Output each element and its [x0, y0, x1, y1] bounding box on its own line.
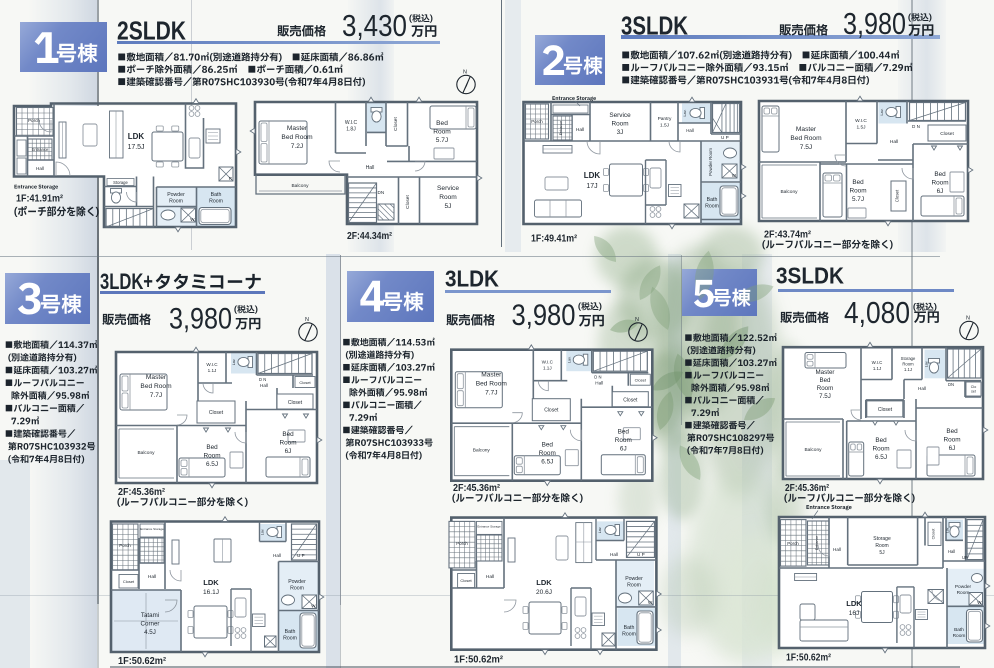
svg-text:1F:50.62m²: 1F:50.62m² [118, 655, 166, 667]
svg-text:Hall: Hall [610, 552, 618, 557]
svg-text:1F:50.62m²: 1F:50.62m² [454, 654, 503, 666]
svg-text:Room: Room [627, 582, 641, 588]
svg-text:2F:43.74m²: 2F:43.74m² [764, 229, 811, 241]
svg-text:Closet: Closet [635, 378, 647, 383]
svg-text:U P: U P [721, 135, 729, 140]
svg-text:Porch: Porch [119, 543, 131, 548]
svg-text:Balcony: Balcony [473, 448, 491, 454]
svg-text:Porch: Porch [456, 541, 468, 546]
svg-text:Room: Room [705, 203, 719, 209]
svg-text:6J: 6J [937, 188, 944, 195]
svg-text:Room: Room [622, 631, 636, 637]
svg-text:Service: Service [609, 112, 631, 119]
svg-text:W: W [648, 600, 653, 605]
svg-text:Room: Room [615, 437, 632, 444]
svg-text:3J: 3J [617, 129, 624, 136]
svg-text:Closet: Closet [895, 189, 900, 202]
svg-text:Room: Room [433, 129, 451, 136]
svg-text:1.5J: 1.5J [856, 125, 866, 131]
svg-text:Porch: Porch [28, 118, 40, 123]
svg-text:LDK: LDK [584, 171, 601, 180]
svg-text:W.I.C: W.I.C [855, 118, 867, 124]
svg-text:1.5J: 1.5J [660, 123, 670, 129]
svg-text:6.5J: 6.5J [206, 461, 218, 468]
svg-text:Powder Room: Powder Room [708, 148, 713, 176]
svg-text:3SLDK: 3SLDK [621, 11, 688, 41]
svg-text:N: N [463, 69, 467, 75]
svg-text:Clo: Clo [971, 385, 976, 389]
svg-text:5.7J: 5.7J [852, 196, 864, 203]
svg-text:Hall: Hall [36, 166, 44, 171]
svg-text:Lav.: Lav. [683, 110, 687, 117]
svg-text:Porch: Porch [787, 541, 799, 546]
svg-text:Room: Room [539, 450, 556, 457]
svg-text:Closet: Closet [940, 131, 954, 137]
svg-text:1.1J: 1.1J [904, 367, 912, 372]
svg-text:LDK: LDK [536, 578, 552, 587]
svg-text:Hall: Hall [576, 127, 584, 133]
svg-text:Lav.: Lav. [598, 527, 602, 534]
svg-text:1.1J: 1.1J [873, 366, 881, 371]
svg-text:D N: D N [594, 375, 601, 380]
svg-text:1.1J: 1.1J [208, 368, 217, 373]
svg-text:U P: U P [297, 553, 305, 558]
svg-text:Powder: Powder [288, 579, 306, 585]
svg-text:Closet: Closet [209, 410, 224, 416]
svg-text:16J: 16J [849, 610, 859, 617]
svg-text:Entrance: Entrance [32, 147, 49, 152]
svg-text:W.I.C: W.I.C [542, 360, 554, 365]
svg-text:Bed: Bed [282, 431, 294, 438]
svg-text:Closet: Closet [932, 528, 936, 540]
svg-text:Lav.: Lav. [261, 529, 265, 536]
svg-text:Bath: Bath [954, 627, 964, 633]
svg-text:Lav.: Lav. [880, 109, 884, 116]
svg-text:Master: Master [481, 372, 502, 379]
svg-text:Closet: Closet [393, 117, 399, 131]
svg-text:Bed: Bed [946, 428, 958, 435]
svg-text:set: set [971, 390, 976, 394]
svg-text:Room: Room [203, 453, 220, 460]
svg-text:Bath: Bath [211, 192, 222, 198]
svg-text:4.5J: 4.5J [144, 629, 156, 636]
svg-text:W.I.C: W.I.C [206, 362, 218, 367]
svg-text:N: N [635, 317, 639, 323]
svg-text:2F:45.36m²: 2F:45.36m² [453, 482, 500, 494]
svg-text:3,980: 3,980 [843, 6, 906, 41]
svg-text:DN: DN [378, 190, 385, 195]
svg-text:Bath: Bath [624, 625, 635, 631]
svg-text:Porch: Porch [531, 119, 543, 124]
svg-text:N: N [966, 315, 970, 321]
svg-text:Hall: Hall [595, 381, 603, 386]
svg-text:Hall: Hall [260, 383, 268, 388]
svg-text:2F:45.36m²: 2F:45.36m² [785, 482, 829, 494]
svg-text:6J: 6J [949, 445, 956, 452]
svg-text:Entrance Storage: Entrance Storage [140, 527, 164, 531]
svg-text:Bed Room: Bed Room [790, 135, 822, 142]
svg-text:Corner: Corner [141, 621, 160, 628]
svg-text:7.7J: 7.7J [485, 390, 497, 397]
svg-text:UP: UP [962, 555, 968, 560]
svg-text:LDK: LDK [203, 578, 219, 587]
svg-text:Master: Master [146, 374, 167, 381]
svg-text:Master: Master [816, 369, 835, 376]
svg-text:Master: Master [796, 126, 817, 133]
svg-text:Room: Room [931, 180, 948, 187]
svg-text:Bed: Bed [436, 120, 448, 127]
svg-text:Lav.: Lav. [567, 356, 571, 363]
svg-text:5J: 5J [879, 550, 885, 556]
svg-text:Room: Room [943, 437, 960, 444]
svg-text:U P: U P [637, 552, 645, 557]
svg-text:LDK: LDK [128, 132, 145, 141]
svg-text:Closet: Closet [123, 579, 135, 584]
svg-text:16.1J: 16.1J [203, 589, 219, 596]
svg-text:Bed: Bed [875, 437, 887, 444]
svg-text:3,980: 3,980 [169, 303, 232, 336]
svg-text:Hall: Hall [686, 128, 694, 133]
svg-text:W.I.C: W.I.C [345, 120, 358, 126]
svg-text:Room: Room [817, 385, 834, 392]
svg-text:1.8J: 1.8J [346, 127, 356, 133]
svg-text:6.5J: 6.5J [875, 454, 887, 461]
svg-text:Closet: Closet [544, 408, 559, 414]
svg-text:6J: 6J [620, 446, 627, 453]
svg-text:Room: Room [872, 446, 889, 453]
svg-text:Storage: Storage [113, 180, 128, 185]
svg-text:Bed Room: Bed Room [281, 134, 313, 141]
svg-text:2F:45.36m²: 2F:45.36m² [118, 486, 165, 498]
svg-text:Entrance: Entrance [559, 121, 563, 135]
svg-text:Powder: Powder [167, 192, 185, 198]
svg-text:Bath: Bath [285, 629, 296, 635]
svg-text:Lav.: Lav. [232, 359, 236, 366]
svg-text:Room: Room [957, 590, 970, 596]
svg-text:Bed: Bed [819, 377, 831, 384]
svg-text:Balcony: Balcony [804, 447, 822, 453]
svg-text:Bed Room: Bed Room [476, 381, 508, 388]
svg-text:Tatami: Tatami [141, 612, 159, 619]
svg-text:Balcony: Balcony [137, 450, 155, 456]
svg-text:Room: Room [875, 543, 888, 549]
svg-text:Bed: Bed [618, 429, 630, 436]
svg-text:2F:44.34m²: 2F:44.34m² [347, 230, 392, 242]
svg-text:Powder: Powder [625, 576, 643, 582]
svg-text:2SLDK: 2SLDK [117, 16, 186, 46]
svg-text:Master: Master [287, 125, 308, 132]
svg-text:7.7J: 7.7J [150, 392, 162, 399]
svg-text:Bath: Bath [707, 197, 718, 203]
svg-text:Closet: Closet [299, 380, 311, 385]
svg-text:Room: Room [169, 198, 183, 204]
svg-text:Hall: Hall [148, 574, 156, 580]
svg-text:Closet: Closet [288, 400, 303, 406]
svg-text:DN: DN [948, 382, 954, 387]
svg-text:3,980: 3,980 [512, 299, 576, 332]
svg-text:Room: Room [290, 585, 304, 591]
svg-text:Room: Room [209, 198, 223, 204]
svg-text:1F:50.62m²: 1F:50.62m² [786, 652, 831, 664]
svg-text:Bed Room: Bed Room [140, 383, 172, 390]
svg-text:6.5J: 6.5J [541, 459, 553, 466]
svg-text:Bed: Bed [934, 171, 946, 178]
svg-text:3SLDK: 3SLDK [776, 263, 844, 289]
svg-text:Storage: Storage [901, 356, 916, 361]
svg-text:Hall: Hall [918, 386, 926, 391]
svg-text:17.5J: 17.5J [127, 144, 144, 151]
svg-text:Bed: Bed [206, 444, 218, 451]
svg-text:7.5J: 7.5J [800, 144, 812, 151]
svg-text:Room: Room [279, 440, 296, 447]
svg-text:D N: D N [259, 377, 266, 382]
svg-text:20.6J: 20.6J [536, 589, 552, 596]
svg-text:Powder: Powder [955, 584, 972, 590]
svg-text:1F:41.91m²: 1F:41.91m² [16, 193, 63, 205]
svg-text:Balcony: Balcony [291, 183, 309, 189]
svg-text:5J: 5J [445, 203, 452, 210]
svg-text:3,430: 3,430 [342, 8, 407, 43]
svg-text:N: N [305, 317, 309, 323]
svg-text:7.5J: 7.5J [819, 393, 831, 400]
svg-text:Closet: Closet [405, 195, 411, 209]
svg-text:Storage: Storage [873, 536, 891, 542]
svg-text:3LDK: 3LDK [445, 266, 499, 292]
svg-text:1.1J: 1.1J [543, 366, 552, 371]
svg-text:3LDK+: 3LDK+ [100, 269, 153, 294]
svg-text:Closet: Closet [878, 407, 893, 413]
svg-text:Hall: Hall [273, 553, 281, 558]
svg-text:Balcony: Balcony [780, 189, 798, 195]
svg-text:Room: Room [902, 362, 914, 367]
svg-text:Room: Room [283, 635, 297, 641]
svg-text:Room: Room [611, 121, 628, 128]
svg-text:7.2J: 7.2J [291, 143, 303, 150]
svg-text:Hall: Hall [366, 165, 375, 171]
svg-text:Lav.: Lav. [946, 527, 950, 533]
svg-text:Hall: Hall [948, 549, 955, 554]
svg-text:LDK: LDK [846, 599, 862, 608]
svg-text:Hall: Hall [890, 139, 898, 145]
svg-text:6J: 6J [285, 448, 292, 455]
svg-text:5.7J: 5.7J [436, 137, 448, 144]
svg-text:D N: D N [912, 124, 920, 129]
svg-text:Room: Room [849, 188, 866, 195]
svg-text:4,080: 4,080 [844, 295, 910, 330]
svg-text:Closet: Closet [460, 578, 472, 583]
svg-text:1F:49.41m²: 1F:49.41m² [531, 233, 577, 245]
svg-text:Entrance Storage: Entrance Storage [477, 525, 501, 529]
svg-text:17J: 17J [586, 183, 597, 190]
svg-text:Room: Room [953, 633, 966, 639]
svg-text:Pantry: Pantry [658, 116, 672, 122]
svg-text:Hall: Hall [486, 574, 494, 580]
svg-text:Entrance: Entrance [815, 536, 819, 550]
svg-text:Hall: Hall [833, 547, 841, 552]
svg-text:Room: Room [439, 194, 457, 201]
svg-text:W.I.C: W.I.C [872, 360, 883, 365]
svg-text:Lav.: Lav. [925, 361, 929, 368]
svg-text:Bed: Bed [542, 442, 554, 449]
svg-text:Closet: Closet [623, 398, 638, 404]
svg-text:Bed: Bed [852, 179, 864, 186]
svg-text:Service: Service [437, 185, 459, 192]
